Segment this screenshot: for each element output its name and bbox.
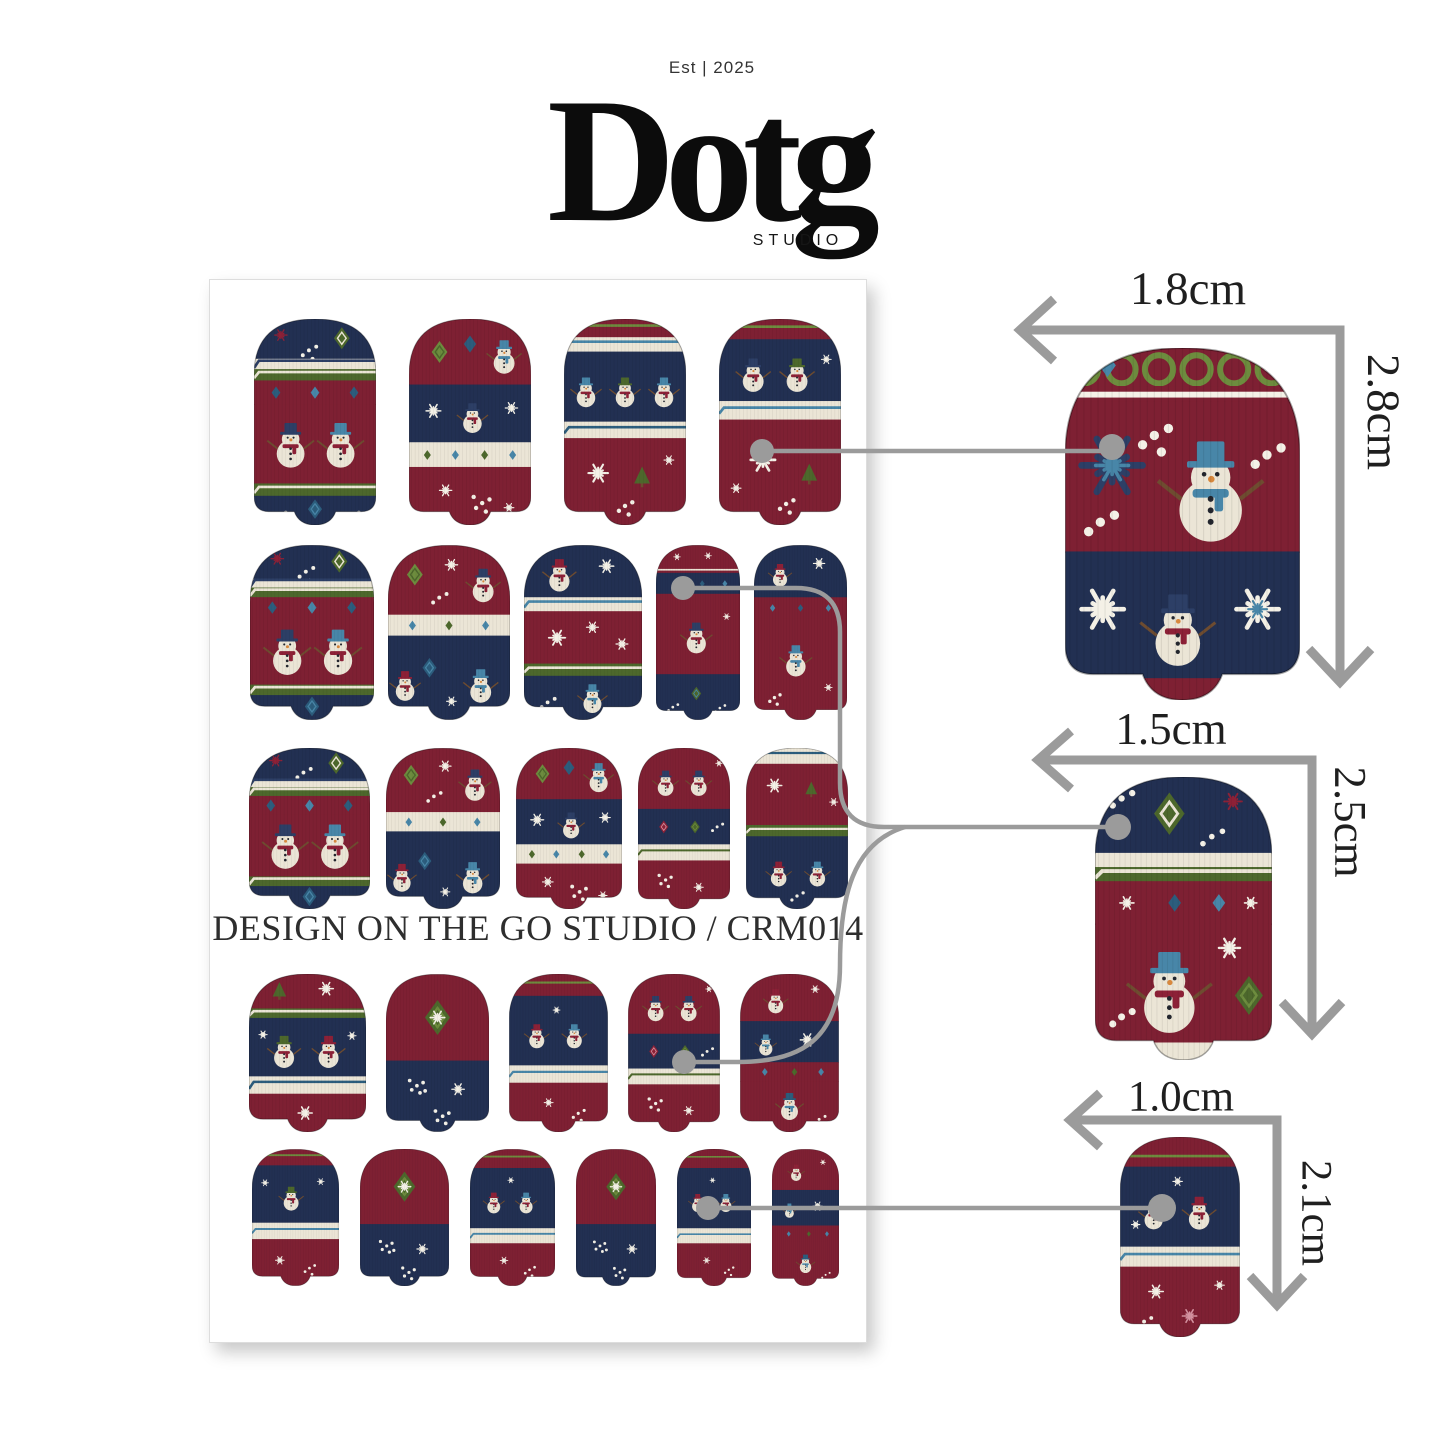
arrowhead-left-icon: [1020, 299, 1054, 361]
nail-decal-graphic: [249, 748, 370, 909]
nail-decal-graphic: [470, 1149, 555, 1286]
nail-decal: [564, 319, 686, 525]
nail-decal-graphic: [252, 1149, 339, 1286]
nail-decal-graphic: [677, 1149, 751, 1286]
nail-decal: [252, 1149, 339, 1286]
nail-decal-graphic: [1065, 348, 1300, 700]
nail-decal-graphic: [1120, 1137, 1240, 1337]
nail-decal-graphic: [409, 319, 531, 525]
nail-decal: [509, 974, 608, 1132]
arrowhead-down-icon: [1250, 1276, 1304, 1305]
nail-decal: [386, 748, 500, 909]
nail-decal: [628, 974, 720, 1132]
dimension-height-medium: 2.5cm: [1324, 766, 1376, 877]
detail-nail-medium: [1095, 777, 1272, 1060]
nail-decal-graphic: [656, 545, 740, 720]
nail-row: [210, 1149, 908, 1286]
nail-decal: [388, 545, 510, 720]
nail-decal-graphic: [386, 974, 489, 1132]
nail-row: [210, 319, 910, 525]
nail-decal-graphic: [638, 748, 730, 909]
nail-decal: [386, 974, 489, 1132]
sheet-product-label: DESIGN ON THE GO STUDIO / CRM014: [210, 907, 866, 949]
nail-decal-graphic: [254, 319, 376, 525]
detail-nail-large: [1065, 348, 1300, 700]
detail-nail-small: [1120, 1137, 1240, 1337]
nail-decal: [638, 748, 730, 909]
nail-row: [210, 545, 906, 720]
nail-row: [210, 974, 905, 1132]
nail-decal-graphic: [250, 545, 374, 720]
dimension-width-small: 1.0cm: [1128, 1073, 1234, 1122]
nail-decal-graphic: [386, 748, 500, 909]
arrowhead-left-icon: [1038, 731, 1071, 789]
nail-decal-graphic: [746, 748, 848, 909]
nail-decal: [516, 748, 622, 909]
dimension-height-large: 2.8cm: [1356, 354, 1410, 470]
decal-sheet: DESIGN ON THE GO STUDIO / CRM014: [209, 279, 867, 1343]
dimension-height-small: 2.1cm: [1292, 1160, 1341, 1266]
nail-decal-graphic: [516, 748, 622, 909]
nail-decal-graphic: [564, 319, 686, 525]
nail-decal: [250, 545, 374, 720]
nail-decal-graphic: [388, 545, 510, 720]
nail-decal-graphic: [719, 319, 841, 525]
nail-decal: [754, 545, 847, 720]
nail-decal: [746, 748, 848, 909]
nail-decal-graphic: [1095, 777, 1272, 1060]
nail-decal: [409, 319, 531, 525]
nail-decal-graphic: [754, 545, 847, 720]
dimension-width-medium: 1.5cm: [1115, 703, 1226, 755]
nail-row: [210, 748, 905, 909]
nail-decal: [249, 974, 366, 1132]
nail-decal: [656, 545, 740, 720]
nail-decal-graphic: [249, 974, 366, 1132]
arrowhead-down-icon: [1309, 649, 1371, 682]
nail-decal-graphic: [628, 974, 720, 1132]
nail-decal-graphic: [524, 545, 642, 720]
nail-decal: [254, 319, 376, 525]
arrowhead-down-icon: [1282, 1002, 1342, 1034]
nail-decal: [677, 1149, 751, 1286]
nail-decal-graphic: [509, 974, 608, 1132]
nail-decal: [249, 748, 370, 909]
brand-logo: Dotg: [547, 71, 869, 249]
nail-decal: [360, 1149, 449, 1286]
product-mockup-page: Est | 2025 Dotg STUDIO DESIGN ON THE GO …: [0, 0, 1445, 1445]
dimension-width-large: 1.8cm: [1130, 262, 1246, 316]
nail-decal-graphic: [740, 974, 839, 1132]
nail-decal-graphic: [360, 1149, 449, 1286]
nail-decal: [524, 545, 642, 720]
nail-decal: [470, 1149, 555, 1286]
studio-label: STUDIO: [753, 232, 843, 250]
nail-decal: [719, 319, 841, 525]
nail-decal: [772, 1149, 839, 1286]
nail-decal-graphic: [576, 1149, 656, 1286]
arrowhead-left-icon: [1070, 1093, 1100, 1147]
nail-decal: [576, 1149, 656, 1286]
nail-decal-graphic: [772, 1149, 839, 1286]
nail-decal: [740, 974, 839, 1132]
